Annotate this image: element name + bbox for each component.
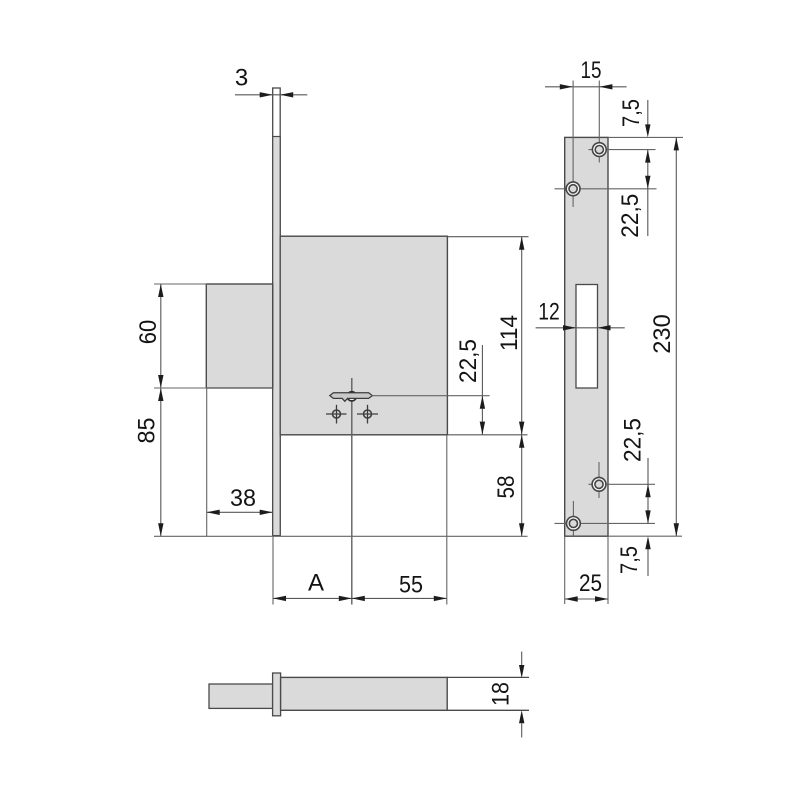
svg-text:7,5: 7,5 <box>618 99 645 127</box>
svg-text:25: 25 <box>579 570 602 597</box>
svg-text:58: 58 <box>493 476 520 499</box>
svg-text:85: 85 <box>134 418 161 444</box>
svg-text:18: 18 <box>488 682 515 706</box>
svg-text:22,5: 22,5 <box>455 339 482 383</box>
svg-text:22,5: 22,5 <box>617 194 644 238</box>
svg-text:15: 15 <box>581 57 602 84</box>
svg-text:60: 60 <box>135 320 162 345</box>
svg-text:3: 3 <box>235 65 248 92</box>
svg-text:55: 55 <box>399 572 423 599</box>
svg-text:7,5: 7,5 <box>616 546 643 574</box>
svg-text:22,5: 22,5 <box>620 418 647 462</box>
svg-text:12: 12 <box>538 299 560 326</box>
svg-text:A: A <box>308 570 324 597</box>
svg-text:38: 38 <box>230 485 256 512</box>
svg-text:114: 114 <box>496 315 523 351</box>
svg-text:230: 230 <box>649 314 676 354</box>
